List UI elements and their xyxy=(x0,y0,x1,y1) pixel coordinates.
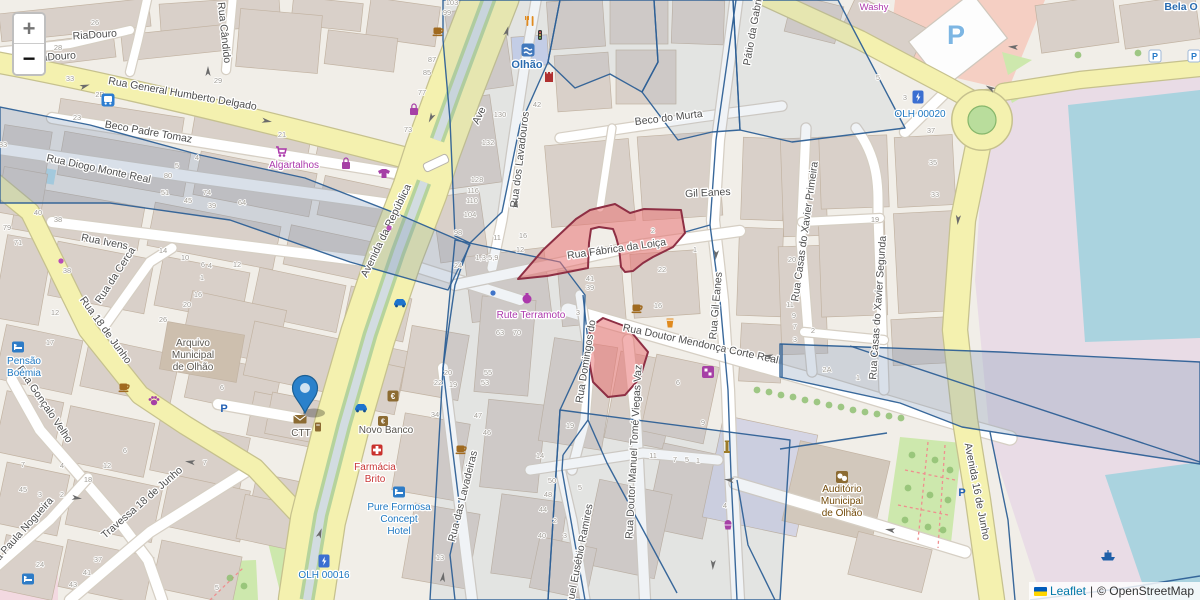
house-number: 11 xyxy=(786,300,794,309)
house-number: 16 xyxy=(654,301,662,310)
house-number: 2A xyxy=(822,365,831,374)
svg-text:P: P xyxy=(958,487,965,499)
tree xyxy=(241,583,248,590)
house-number: 2 xyxy=(651,226,655,235)
shop-dot-icon xyxy=(58,258,63,263)
post-office-icon xyxy=(294,415,307,424)
house-number: 98 xyxy=(454,228,462,237)
tree xyxy=(874,411,881,418)
zoom-control: + − xyxy=(12,12,46,76)
charging-station-icon xyxy=(913,91,924,104)
house-number: 74 xyxy=(203,188,211,197)
tree xyxy=(754,387,761,394)
house-number: 44 xyxy=(539,505,547,514)
house-number: 28 xyxy=(54,43,62,52)
tree xyxy=(932,457,939,464)
house-number: 6 xyxy=(220,383,224,392)
svg-text:€: € xyxy=(381,419,385,426)
parking-card-icon: P xyxy=(1188,50,1200,62)
svg-text:P: P xyxy=(1152,52,1158,62)
cafe-icon xyxy=(119,384,130,393)
tree xyxy=(778,392,785,399)
bank-icon: € xyxy=(388,391,399,402)
house-number: 9 xyxy=(701,418,705,427)
house-number: 110 xyxy=(466,196,478,205)
house-number: 5 xyxy=(578,483,582,492)
tree xyxy=(814,399,821,406)
building xyxy=(741,137,786,220)
house-number: 6 xyxy=(201,260,205,269)
svg-text:P: P xyxy=(1191,52,1197,62)
poi-label: Arquivo xyxy=(176,338,210,349)
house-number: 7 xyxy=(203,458,207,467)
tree xyxy=(826,402,833,409)
tree xyxy=(1075,52,1082,59)
poi-label: Farmácia xyxy=(354,462,396,473)
drink-icon xyxy=(667,319,674,328)
poi-label: Pensão xyxy=(7,356,41,367)
house-number: 46 xyxy=(483,428,491,437)
atm-icon: € xyxy=(378,416,388,426)
house-number: 33 xyxy=(66,74,74,83)
poi-label: Concept xyxy=(380,514,417,525)
openstreetmap-link[interactable]: © OpenStreetMap xyxy=(1097,584,1194,598)
map-canvas[interactable]: Rua General Humberto DelgadoBeco Padre T… xyxy=(0,0,1200,600)
building xyxy=(736,227,783,316)
house-number: 29 xyxy=(214,76,222,85)
svg-text:P: P xyxy=(220,403,227,415)
house-number: 41 xyxy=(83,568,91,577)
house-number: 11 xyxy=(493,233,501,242)
postbox-icon xyxy=(315,423,321,432)
house-number: 18 xyxy=(84,475,92,484)
house-number: 1,3,5,9 xyxy=(476,253,499,262)
tree xyxy=(862,409,869,416)
poi-label: Municipal xyxy=(172,350,214,361)
house-number: 128 xyxy=(471,175,484,184)
house-number: 40 xyxy=(34,208,42,217)
house-number: 6 xyxy=(676,378,680,387)
pharmacy-icon xyxy=(372,445,383,456)
house-number: 1 xyxy=(693,245,697,254)
street-label: Gil Eanes xyxy=(685,186,731,200)
house-number: 22 xyxy=(658,265,666,274)
tree xyxy=(850,407,857,414)
house-number: 73 xyxy=(404,125,412,134)
poi-label: Rute Terramoto xyxy=(497,310,566,321)
hostel-icon xyxy=(22,574,34,585)
poi-label: Novo Banco xyxy=(359,425,414,436)
poi-label: Pure Formosa xyxy=(367,502,431,513)
map-svg: Rua General Humberto DelgadoBeco Padre T… xyxy=(0,0,1200,600)
house-number: 51 xyxy=(161,188,169,197)
charging-station-icon xyxy=(319,555,330,568)
house-number: 5 xyxy=(215,583,219,592)
ukraine-flag-icon xyxy=(1034,587,1047,596)
house-number: 3 xyxy=(793,335,797,344)
house-number: 7 xyxy=(673,455,677,464)
house-number: 12 xyxy=(516,245,524,254)
tree xyxy=(802,397,809,404)
house-number: 23 xyxy=(73,113,81,122)
tree xyxy=(886,413,893,420)
house-number: 85 xyxy=(423,68,431,77)
leaflet-link[interactable]: Leaflet xyxy=(1050,584,1086,598)
tree xyxy=(227,575,234,582)
house-number: 3 xyxy=(576,308,580,317)
tree xyxy=(905,485,912,492)
zoom-out-button[interactable]: − xyxy=(14,44,44,74)
poi-label: CTT xyxy=(291,428,310,439)
house-number: 45 xyxy=(19,485,27,494)
house-number: 55 xyxy=(484,368,492,377)
house-number: 42 xyxy=(533,100,541,109)
house-number: 35 xyxy=(929,158,937,167)
house-number: 4 xyxy=(60,461,64,470)
house-number: 34 xyxy=(431,410,439,419)
building xyxy=(236,9,323,74)
parking-card-icon: P xyxy=(1149,50,1161,62)
poi-label: Algartalhos xyxy=(269,160,319,171)
house-number: 16 xyxy=(194,290,202,299)
tree xyxy=(1135,50,1142,57)
house-number: 14 xyxy=(536,451,544,460)
house-number: 20 xyxy=(788,255,796,264)
tree xyxy=(945,497,952,504)
house-number: 79 xyxy=(3,223,11,232)
house-number: 1 xyxy=(200,273,204,282)
poi-label: Washy xyxy=(860,2,889,13)
house-number: 71 xyxy=(14,238,22,247)
tree xyxy=(909,452,916,459)
poi-label: Bela O xyxy=(1164,1,1197,13)
house-number: 11 xyxy=(649,451,657,460)
house-number: 116 xyxy=(467,186,479,195)
lodging-icon xyxy=(12,342,24,353)
house-number: 13 xyxy=(436,553,444,562)
house-number: 103 xyxy=(446,0,459,7)
poi-label: de Olhão xyxy=(173,362,214,373)
house-number: 45 xyxy=(184,196,192,205)
theatre-icon xyxy=(836,471,848,483)
water-harbour xyxy=(1068,90,1200,342)
house-number: 10 xyxy=(181,253,189,262)
poi-label: Municipal xyxy=(821,496,863,507)
house-number: 53 xyxy=(481,378,489,387)
house-number: 83 xyxy=(0,140,7,149)
house-number: 132 xyxy=(482,138,495,147)
house-number: 37 xyxy=(927,126,935,135)
poi-label: OLH 00020 xyxy=(894,109,946,120)
house-number: 19 xyxy=(566,421,574,430)
poi-label: Olhão xyxy=(511,59,542,71)
house-number: 40 xyxy=(538,531,546,540)
house-number: 16 xyxy=(519,231,527,240)
house-number: 43 xyxy=(69,580,77,589)
tree xyxy=(766,389,773,396)
house-number: 12 xyxy=(51,308,59,317)
zoom-in-button[interactable]: + xyxy=(14,14,44,44)
house-number: 19 xyxy=(871,215,879,224)
house-number: 3 xyxy=(38,490,42,499)
marker-pin-hole xyxy=(300,383,310,393)
house-number: 38 xyxy=(63,266,71,275)
house-number: 7 xyxy=(793,322,797,331)
tree xyxy=(902,517,909,524)
house-number: 5 xyxy=(876,73,880,82)
house-number: 130 xyxy=(494,110,507,119)
house-number: 3 xyxy=(563,531,567,540)
parking-icon: P xyxy=(958,487,965,499)
house-number: 24 xyxy=(36,560,44,569)
house-number: 7 xyxy=(21,460,25,469)
attraction-icon xyxy=(545,72,553,82)
poi-label: de Olhão xyxy=(822,508,863,519)
house-number: 26 xyxy=(159,315,167,324)
house-number: 64 xyxy=(238,198,246,207)
house-number: 80 xyxy=(164,171,172,180)
house-number: 1 xyxy=(696,456,700,465)
cafe-icon xyxy=(632,305,643,314)
house-number: 3 xyxy=(903,93,907,102)
house-number: 14 xyxy=(159,246,167,255)
parking-icon: P xyxy=(220,403,227,415)
tree xyxy=(790,394,797,401)
tree xyxy=(940,527,947,534)
tree xyxy=(838,404,845,411)
house-number: 48 xyxy=(544,490,552,499)
house-number: 99 xyxy=(443,8,451,17)
house-number: 1 xyxy=(856,373,860,382)
house-number: 4 xyxy=(723,501,727,510)
house-number: 22 xyxy=(434,378,442,387)
house-number: 2 xyxy=(811,326,815,335)
house-number: 19 xyxy=(449,380,457,389)
house-number: 26 xyxy=(91,18,99,27)
tree xyxy=(925,524,932,531)
house-number: 4 xyxy=(195,153,199,162)
house-number: 12 xyxy=(103,461,111,470)
house-number: 17 xyxy=(46,338,54,347)
house-number: 38 xyxy=(54,215,62,224)
poi-label: Hotel xyxy=(387,526,410,537)
confectionery-icon xyxy=(725,520,732,530)
house-number: 87 xyxy=(428,55,436,64)
house-number: 20 xyxy=(444,368,452,377)
poi-label: Brito xyxy=(365,474,386,485)
house-number: 24 xyxy=(454,261,462,270)
house-number: 20 xyxy=(183,300,191,309)
cafe-icon xyxy=(433,28,444,37)
house-number: 5 xyxy=(175,161,179,170)
poi-label: Auditório xyxy=(822,484,862,495)
house-number: 4 xyxy=(208,261,212,270)
tree xyxy=(898,415,905,422)
house-number: 50 xyxy=(548,476,556,485)
house-number: 77 xyxy=(418,88,426,97)
ferry-terminal-icon xyxy=(522,44,535,57)
house-number: 21 xyxy=(278,130,286,139)
traffic-signals-icon xyxy=(538,30,542,40)
attribution-separator: | xyxy=(1090,584,1093,598)
house-number: 104 xyxy=(464,210,477,219)
poi-label: OLH 00016 xyxy=(298,570,350,581)
shop-dot-icon xyxy=(386,225,391,230)
parking-garage-label: P xyxy=(947,20,965,50)
house-number: 39 xyxy=(586,283,594,292)
house-number: 6 xyxy=(123,446,127,455)
road xyxy=(802,218,880,222)
poi-label: Boémia xyxy=(7,368,41,379)
house-number: 70 xyxy=(513,328,521,337)
hotel-icon xyxy=(393,487,405,498)
house-number: 2 xyxy=(60,490,64,499)
house-number: 41 xyxy=(586,274,594,283)
roundabout xyxy=(968,106,996,134)
house-number: 37 xyxy=(94,555,102,564)
bus-stop-icon xyxy=(102,94,115,107)
tree xyxy=(927,492,934,499)
house-number: 2 xyxy=(553,516,557,525)
purple-square-icon xyxy=(702,366,714,378)
house-number: 47 xyxy=(474,411,482,420)
house-number: 33 xyxy=(931,190,939,199)
svg-text:€: € xyxy=(391,392,396,401)
house-number: 63 xyxy=(496,328,504,337)
cafe-icon xyxy=(456,446,467,455)
tree xyxy=(947,467,954,474)
attribution-bar: Leaflet|© OpenStreetMap xyxy=(1029,582,1200,600)
house-number: 12 xyxy=(233,260,241,269)
house-number: 9 xyxy=(792,311,796,320)
building xyxy=(894,135,956,208)
house-number: 39 xyxy=(208,201,216,210)
poi-dot-icon xyxy=(490,290,495,295)
house-number: 5 xyxy=(685,455,689,464)
